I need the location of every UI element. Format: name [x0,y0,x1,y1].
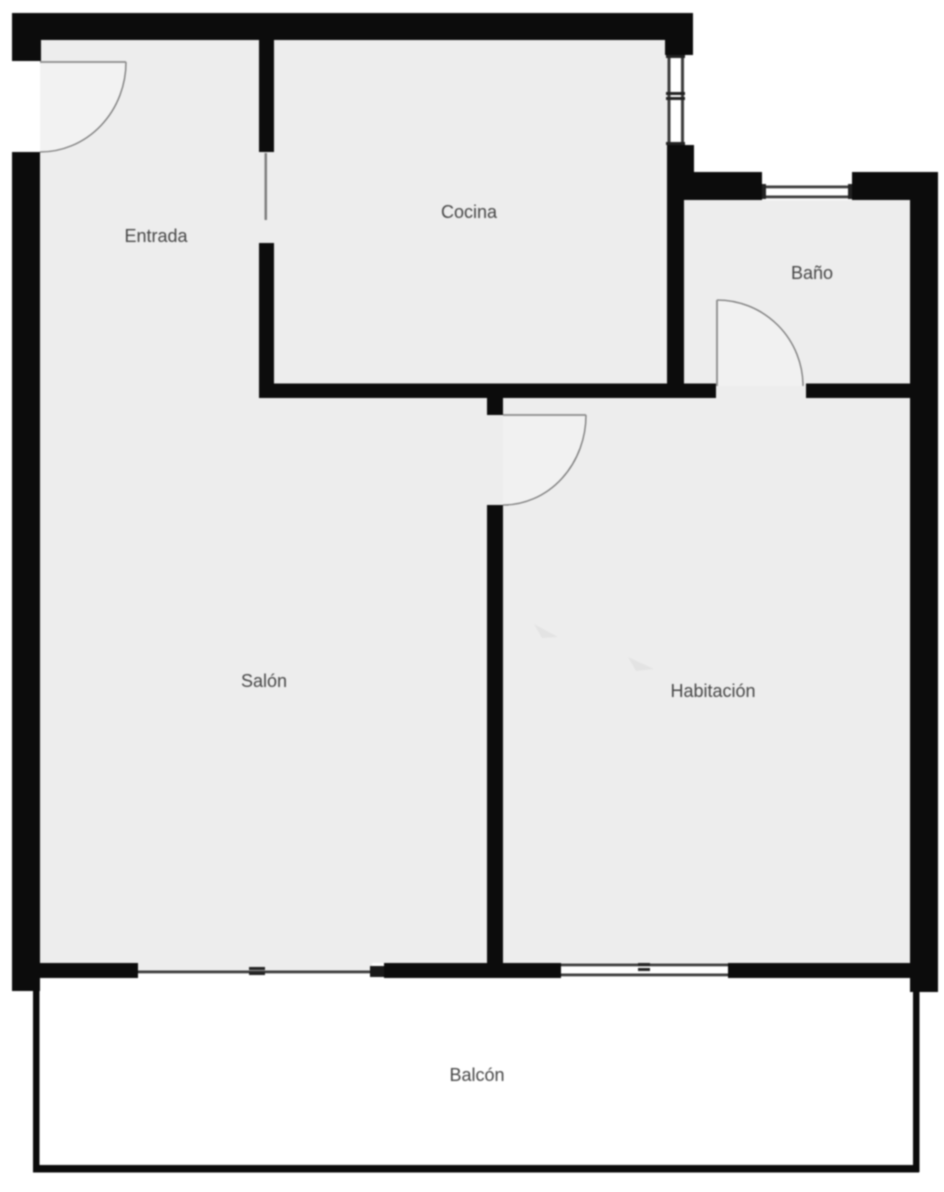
svg-text:Balcón: Balcón [449,1065,504,1085]
svg-text:Entrada: Entrada [124,226,188,246]
svg-text:Cocina: Cocina [441,202,498,222]
svg-text:Baño: Baño [791,263,833,283]
svg-text:Salón: Salón [241,671,287,691]
svg-text:Habitación: Habitación [670,681,755,701]
